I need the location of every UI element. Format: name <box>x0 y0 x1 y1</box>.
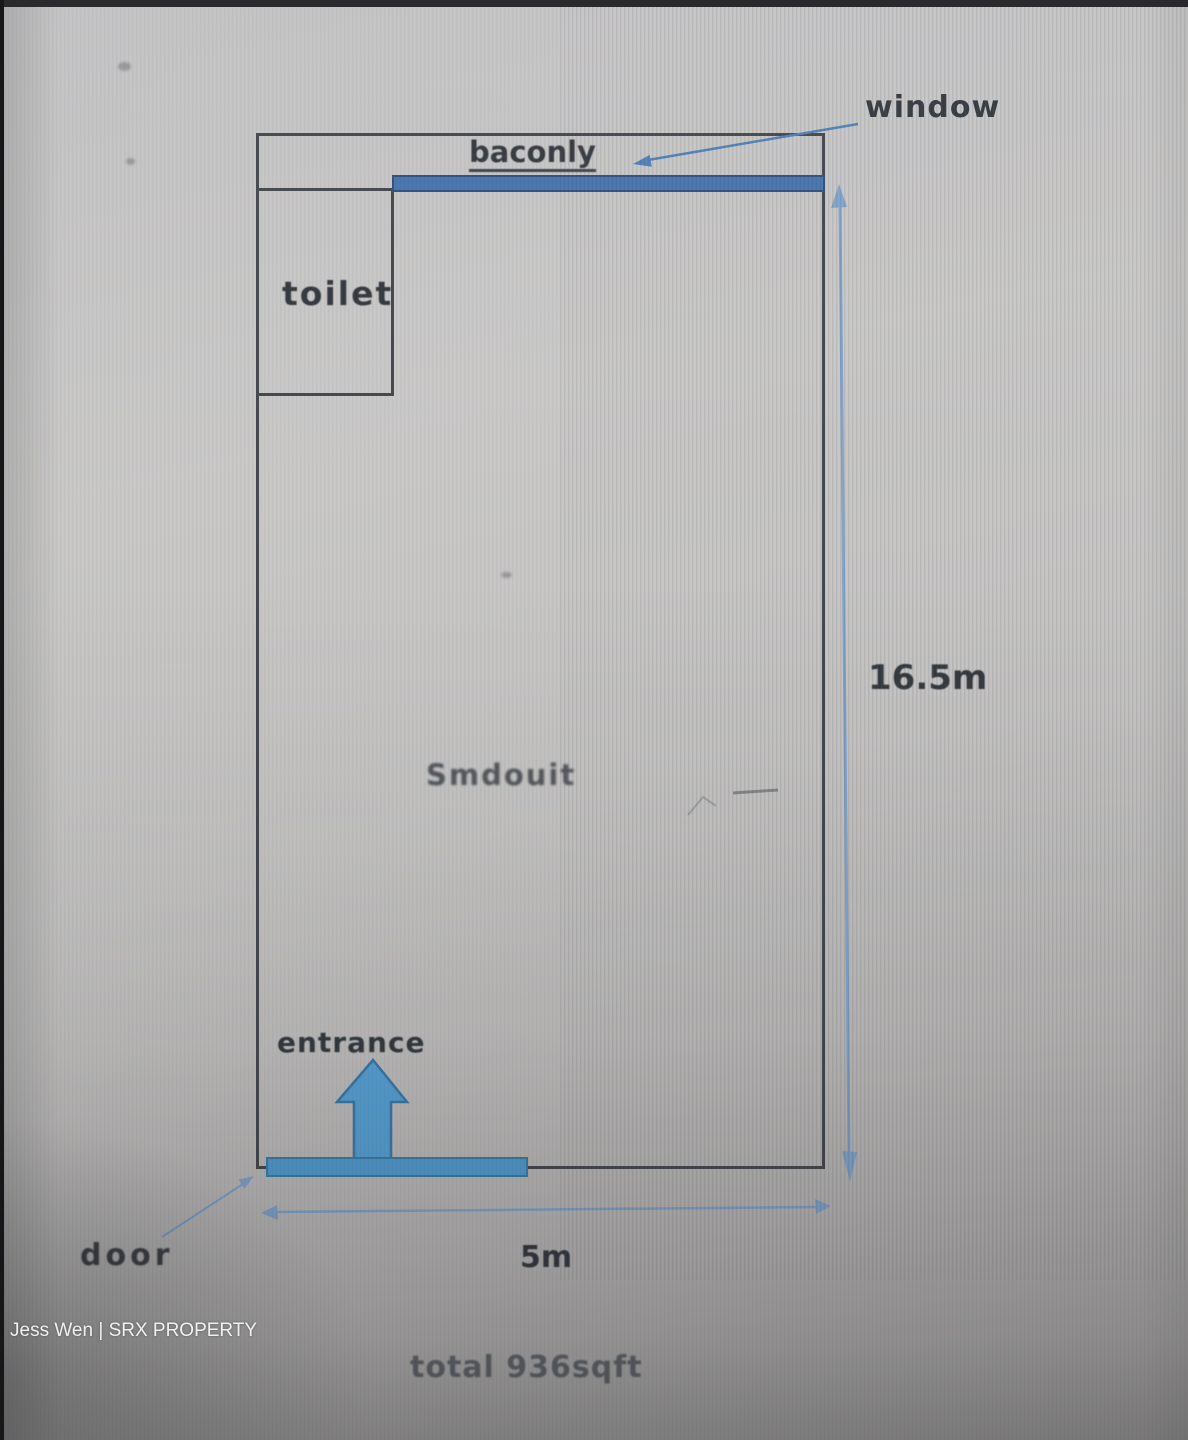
entrance-label: entrance <box>277 1026 426 1059</box>
floorplan-photo: window baconly toilet Smdouit 16.5m entr… <box>0 0 1188 1440</box>
door-label: door <box>80 1238 174 1273</box>
photo-speck <box>126 158 135 165</box>
door-threshold-bar <box>267 1158 527 1176</box>
balcony-label: baconly <box>469 136 596 172</box>
photo-speck <box>501 572 512 578</box>
faint-scribble-mark <box>688 797 716 815</box>
total-area-label: total 936sqft <box>410 1350 643 1385</box>
window-pointer-arrow <box>633 124 858 167</box>
watermark: Jess Wen | SRX PROPERTY <box>10 1320 257 1342</box>
width-dimension-arrow <box>261 1199 831 1220</box>
photo-dark-edge-left <box>0 0 4 1440</box>
floorplan-drawing: window baconly toilet Smdouit 16.5m entr… <box>0 0 1188 1440</box>
photo-dark-edge-top <box>0 0 1188 7</box>
faint-dash-mark <box>733 790 778 793</box>
entrance-arrow <box>337 1060 407 1162</box>
toilet-label: toilet <box>282 274 393 313</box>
door-pointer-arrow <box>162 1176 254 1237</box>
height-dimension-label: 16.5m <box>868 658 987 698</box>
photo-speck <box>118 62 131 71</box>
annotation-arrows <box>0 0 1188 1440</box>
window-label: window <box>865 90 1000 125</box>
width-dimension-label: 5m <box>520 1240 572 1275</box>
height-dimension-arrow <box>831 184 857 1182</box>
room-annotation: Smdouit <box>426 758 576 792</box>
